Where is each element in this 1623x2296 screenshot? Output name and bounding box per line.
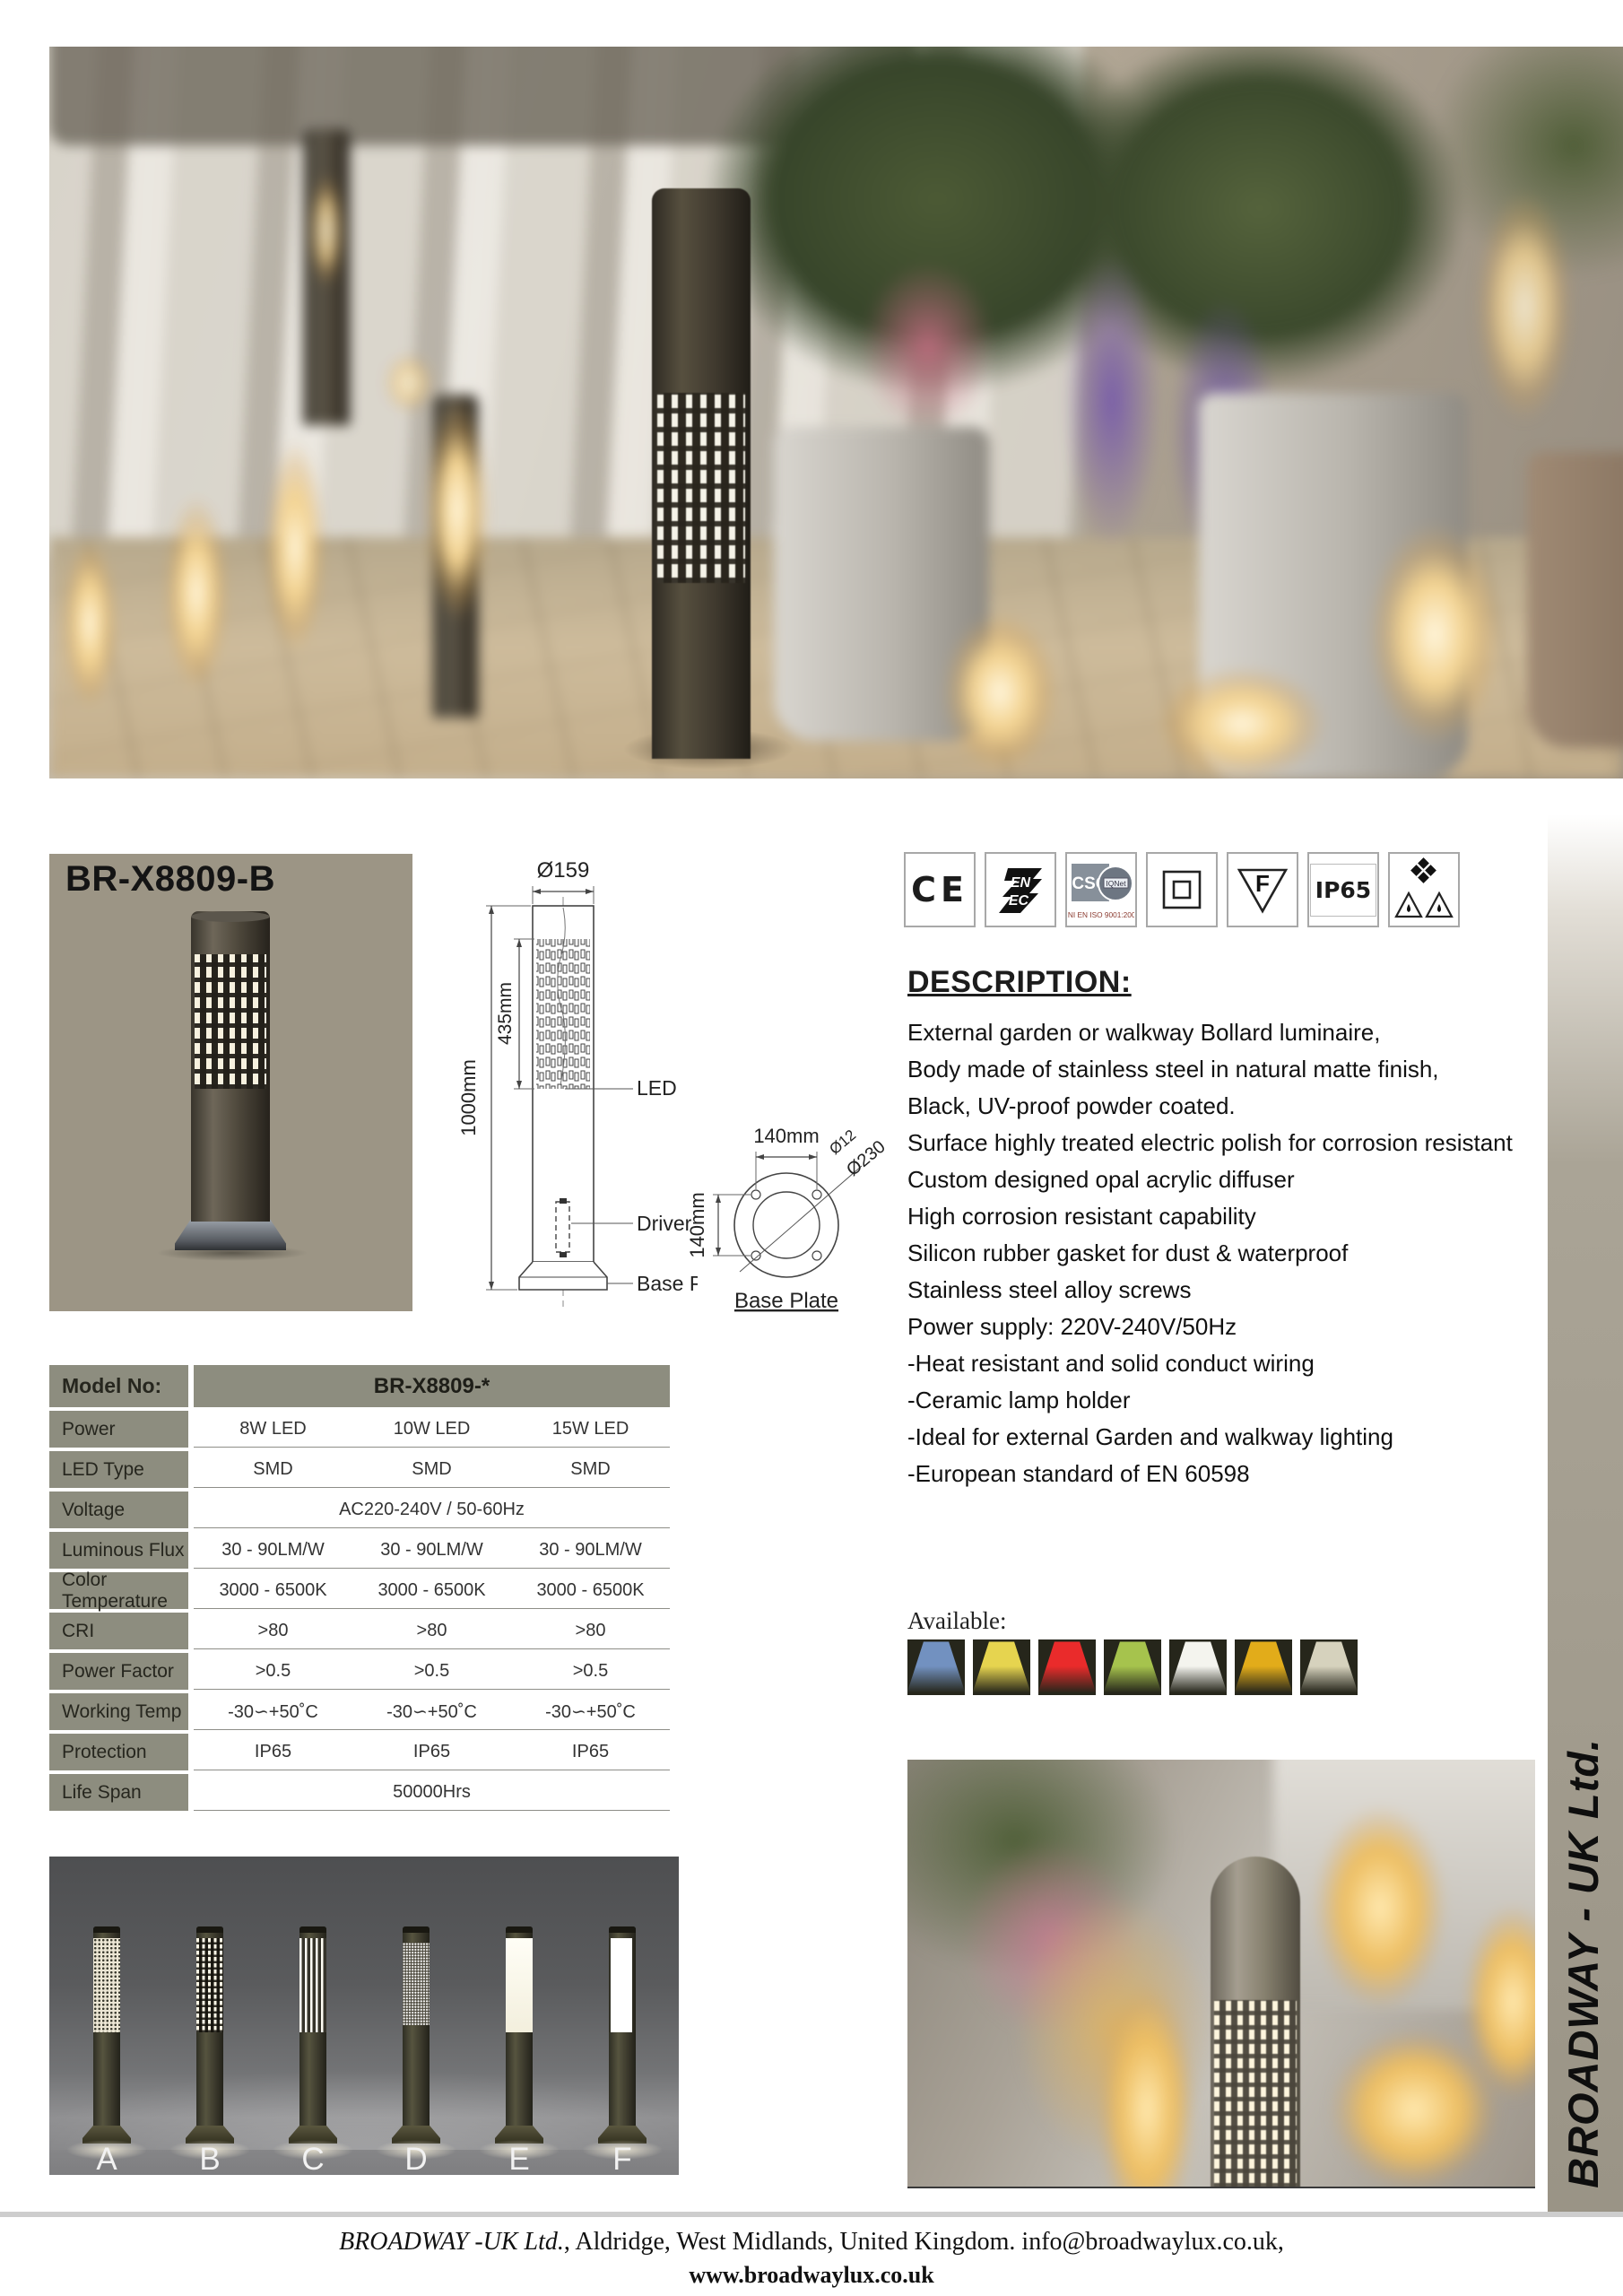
variant-bollard-f [609,1926,636,2133]
light-color-swatch [1169,1639,1227,1695]
table-cell: >0.5 [194,1653,352,1690]
spec-table: Model No:BR-X8809-*Power8W LED10W LED15W… [49,1365,670,1814]
table-row: Life Span50000Hrs [49,1774,670,1811]
table-row-label: Voltage [49,1492,188,1528]
table-cell: 3000 - 6500K [194,1572,352,1609]
drip-proof-icon [1388,852,1460,927]
description-line: -Heat resistant and solid conduct wiring [907,1345,1542,1382]
table-cell: -30∽+50˚C [194,1693,352,1730]
light-color-swatch [1235,1639,1292,1695]
variant-band [196,1938,223,2032]
context-glow [1313,1805,1447,2011]
brand-sidebar-text: BROADWAY - UK Ltd. [1558,1738,1608,2188]
product-bollard-perforation [195,954,266,1089]
description-line: -Ceramic lamp holder [907,1382,1542,1419]
beam-shape [1038,1639,1096,1695]
table-row-values: SMDSMDSMD [194,1451,670,1488]
table-cell: -30∽+50˚C [352,1693,511,1730]
footer-website[interactable]: www.broadwaylux.co.uk [0,2262,1623,2289]
variant-band [299,1938,326,2032]
hero-purple-flowers [1063,253,1161,549]
context-bollard [1211,1857,1300,2188]
dim-diameter-label: Ø159 [537,858,590,883]
footer-address: BROADWAY -UK Ltd., Aldridge, West Midlan… [0,2228,1623,2257]
beam-shape [1169,1639,1227,1695]
hero-photo [49,47,1623,778]
table-row: Model No:BR-X8809-* [49,1365,670,1407]
table-cell: >80 [511,1613,670,1649]
light-color-swatch [907,1639,965,1695]
table-row-values: IP65IP65IP65 [194,1734,670,1770]
variant-letter: E [508,2142,529,2175]
hero-lamp-glow [1157,665,1327,778]
class2-insulation-icon [1146,852,1218,927]
light-color-swatch [973,1639,1030,1695]
context-glow [1098,1984,1196,2188]
table-cell: 30 - 90LM/W [511,1532,670,1569]
table-row-label: Working Temp [49,1693,188,1730]
description-line: Custom designed opal acrylic diffuser [907,1161,1542,1198]
table-cell: >0.5 [511,1653,670,1690]
table-row-values: 30 - 90LM/W30 - 90LM/W30 - 90LM/W [194,1532,670,1569]
variant-letter: F [612,2142,631,2175]
bp-width-label: 140mm [753,1125,819,1147]
hero-lamp-glow [164,495,229,691]
variant-band [403,1943,430,2025]
available-section: Available: [907,1607,1358,1695]
led-callout: LED [637,1076,677,1100]
svg-text:UNI EN ISO 9001:2000: UNI EN ISO 9001:2000 [1068,910,1134,919]
ip65-icon: IP65 [1307,852,1379,927]
light-color-swatch [1038,1639,1096,1695]
product-bollard-cap [191,911,270,922]
description-line: Silicon rubber gasket for dust & waterpr… [907,1235,1542,1272]
product-bollard-base [175,1220,286,1250]
variant-bollard-e [506,1926,533,2133]
variant-bollard-b [196,1926,223,2133]
variant-bollard-a [93,1926,120,2133]
table-row: CRI>80>80>80 [49,1613,670,1649]
hero-bollard-perforation [657,393,745,583]
table-row-values: >80>80>80 [194,1613,670,1649]
beam-shape [907,1639,965,1695]
baseplate-drawing: Ø12 Ø230 140mm 140mm Base Plate [686,1119,890,1320]
table-cell: 3000 - 6500K [511,1572,670,1609]
hero-bollard-far-glow [308,172,344,289]
variant-letter: A [96,2142,117,2175]
description-line: Black, UV-proof powder coated. [907,1088,1542,1125]
beam-shape [1104,1639,1161,1695]
description-line: High corrosion resistant capability [907,1198,1542,1235]
driver-callout: Driver [637,1212,692,1235]
svg-text:F: F [1255,870,1270,897]
description-lines: External garden or walkway Bollard lumin… [907,1014,1542,1492]
light-color-swatch [1300,1639,1358,1695]
dim-height-label: 1000mm [457,1059,480,1136]
variant-band [93,1938,120,2032]
table-row-label: Power [49,1411,188,1448]
table-row-label: Protection [49,1734,188,1770]
datasheet-page: BR-X8809-B Ø159 [0,0,1623,2296]
table-cell: 3000 - 6500K [352,1572,511,1609]
table-cell: 8W LED [194,1411,352,1448]
table-row-values: BR-X8809-* [194,1365,670,1407]
table-row-label: Model No: [49,1365,188,1407]
table-row: LED TypeSMDSMDSMD [49,1451,670,1488]
description-line: Power supply: 220V-240V/50Hz [907,1309,1542,1345]
svg-text:IQNet: IQNet [1106,879,1126,888]
table-row: Luminous Flux30 - 90LM/W30 - 90LM/W30 - … [49,1532,670,1569]
footer-divider [0,2212,1623,2217]
footer-company: BROADWAY -UK Ltd. [339,2228,564,2256]
table-row-values: 3000 - 6500K3000 - 6500K3000 - 6500K [194,1572,670,1609]
hero-lamp-glow [942,612,1058,773]
table-span-cell: BR-X8809-* [194,1365,670,1407]
csq-iqnet-icon: CSQ IQNet UNI EN ISO 9001:2000 [1065,852,1137,927]
table-span-cell: AC220-240V / 50-60Hz [194,1492,670,1528]
table-cell: 10W LED [352,1411,511,1448]
variant-letter: B [199,2142,220,2175]
variant-bollard-c [299,1926,326,2133]
light-color-swatch [1104,1639,1161,1695]
variant-letter: C [301,2142,324,2175]
brand-sidebar: BROADWAY - UK Ltd. [1548,814,1623,2212]
product-model-title: BR-X8809-B [65,859,275,900]
table-row: Power Factor>0.5>0.5>0.5 [49,1653,670,1690]
table-row-label: Power Factor [49,1653,188,1690]
bp-hole-dia-label: Ø12 [826,1126,859,1158]
ce-icon: CE [904,852,976,927]
description-section: DESCRIPTION: External garden or walkway … [907,965,1542,1492]
hero-lamp-glow [62,538,117,709]
table-cell: SMD [511,1451,670,1488]
table-row-label: Life Span [49,1774,188,1811]
enec-icon: EN EC [985,852,1056,927]
table-row-label: CRI [49,1613,188,1649]
bp-caption: Base Plate [734,1289,838,1313]
hero-bollard-foreground [652,188,751,759]
table-row: Working Temp-30∽+50˚C-30∽+50˚C-30∽+50˚C [49,1693,670,1730]
table-row-label: Color Temperature [49,1572,188,1609]
table-row: VoltageAC220-240V / 50-60Hz [49,1492,670,1528]
table-cell: >80 [194,1613,352,1649]
context-bollard-perforation [1214,2000,1297,2188]
table-span-cell: 50000Hrs [194,1774,670,1811]
hero-planter [1527,452,1623,748]
svg-text:EC: EC [1009,893,1029,909]
table-row: Power8W LED10W LED15W LED [49,1411,670,1448]
table-row-values: 50000Hrs [194,1774,670,1811]
bp-height-label: 140mm [686,1192,708,1257]
hero-ring-glow [383,352,435,414]
table-cell: >80 [352,1613,511,1649]
table-cell: SMD [352,1451,511,1488]
table-cell: 30 - 90LM/W [352,1532,511,1569]
svg-text:EN: EN [1011,875,1031,891]
table-cell: -30∽+50˚C [511,1693,670,1730]
description-line: Surface highly treated electric polish f… [907,1125,1542,1161]
product-card: BR-X8809-B [49,854,412,1311]
hero-lamp-glow [1367,522,1502,746]
certification-row: CE EN EC CSQ IQNet UNI EN ISO 9001:2000 [904,852,1460,927]
beam-shape [973,1639,1030,1695]
table-row: Color Temperature3000 - 6500K3000 - 6500… [49,1572,670,1609]
footer-address-rest: , Aldridge, West Midlands, United Kingdo… [564,2228,1284,2256]
table-cell: IP65 [194,1734,352,1770]
variant-band [611,1938,632,2032]
variant-letter: D [404,2142,427,2175]
variant-band [506,1938,533,2032]
table-cell: IP65 [352,1734,511,1770]
description-line: -European standard of EN 60598 [907,1456,1542,1492]
beam-shape [1300,1639,1358,1695]
context-glow [1463,1903,1535,2100]
description-line: Stainless steel alloy screws [907,1272,1542,1309]
table-row-values: 8W LED10W LED15W LED [194,1411,670,1448]
dimension-drawing: Ø159 1000mm 435mm LED Driver Base Plate [429,854,698,1349]
description-line: External garden or walkway Bollard lumin… [907,1014,1542,1051]
table-row-values: >0.5>0.5>0.5 [194,1653,670,1690]
variant-bollard-d [403,1926,430,2133]
description-line: -Ideal for external Garden and walkway l… [907,1419,1542,1456]
hero-backlit-vines [1475,190,1574,423]
table-row: ProtectionIP65IP65IP65 [49,1734,670,1770]
table-cell: >0.5 [352,1653,511,1690]
description-line: Body made of stainless steel in natural … [907,1051,1542,1088]
hero-background [49,47,1623,778]
available-swatches [907,1639,1358,1695]
dim-band-label: 435mm [495,982,516,1045]
hero-lamp-glow [265,439,325,655]
hero-pink-flowers [861,262,995,432]
product-bollard-body [191,911,270,1222]
description-heading: DESCRIPTION: [907,965,1542,1000]
variants-photo: ABCDEF [49,1857,679,2175]
available-label: Available: [907,1607,1358,1635]
hero-lamp-glow [424,398,490,622]
table-row-values: AC220-240V / 50-60Hz [194,1492,670,1528]
table-row-label: LED Type [49,1451,188,1488]
table-row-label: Luminous Flux [49,1532,188,1569]
table-cell: 30 - 90LM/W [194,1532,352,1569]
table-cell: 15W LED [511,1411,670,1448]
context-photo [907,1760,1535,2188]
beam-shape [1235,1639,1292,1695]
table-cell: IP65 [511,1734,670,1770]
f-mark-icon: F [1227,852,1298,927]
table-row-values: -30∽+50˚C-30∽+50˚C-30∽+50˚C [194,1693,670,1730]
table-cell: SMD [194,1451,352,1488]
